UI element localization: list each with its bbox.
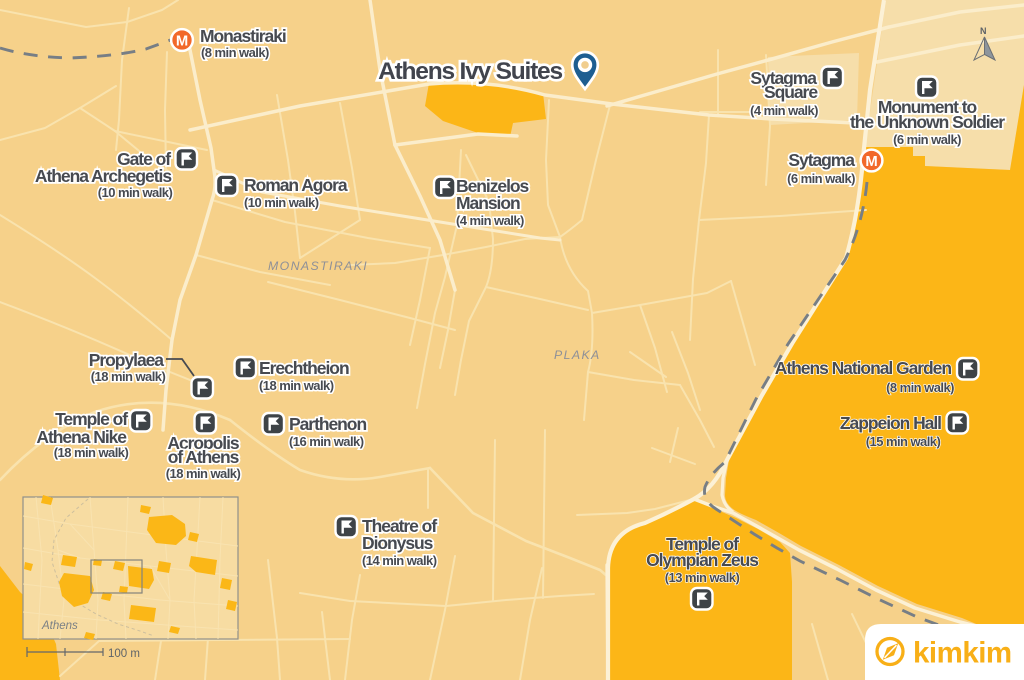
svg-text:M: M xyxy=(176,33,188,49)
svg-text:(10 min walk): (10 min walk) xyxy=(98,185,173,200)
svg-text:Dionysus: Dionysus xyxy=(362,533,434,553)
svg-text:Athens: Athens xyxy=(41,620,78,632)
svg-text:Roman Agora: Roman Agora xyxy=(244,175,348,195)
svg-text:(10 min walk): (10 min walk) xyxy=(244,195,319,210)
svg-text:Mansion: Mansion xyxy=(456,193,520,213)
svg-text:N: N xyxy=(980,26,987,36)
svg-text:Square: Square xyxy=(764,82,818,102)
svg-text:Olympian Zeus: Olympian Zeus xyxy=(646,550,759,570)
svg-text:kimkim: kimkim xyxy=(913,637,1012,670)
svg-text:(6 min walk): (6 min walk) xyxy=(893,132,961,147)
svg-text:the Unknown Soldier: the Unknown Soldier xyxy=(850,112,1005,132)
svg-text:(8 min walk): (8 min walk) xyxy=(201,45,269,60)
svg-text:(14 min walk): (14 min walk) xyxy=(362,553,437,568)
svg-text:Athena Archegetis: Athena Archegetis xyxy=(35,166,172,186)
svg-text:MONASTIRAKI: MONASTIRAKI xyxy=(268,259,368,273)
svg-text:Athens National Garden: Athens National Garden xyxy=(775,358,952,378)
svg-text:Erechtheion: Erechtheion xyxy=(259,358,349,378)
svg-text:Parthenon: Parthenon xyxy=(289,414,366,434)
svg-text:(18 min walk): (18 min walk) xyxy=(54,445,129,460)
svg-text:Monastiraki: Monastiraki xyxy=(200,26,286,46)
svg-text:Temple of: Temple of xyxy=(55,409,128,429)
svg-text:(16 min walk): (16 min walk) xyxy=(289,434,364,449)
svg-text:(18 min walk): (18 min walk) xyxy=(91,369,166,384)
svg-text:100 m: 100 m xyxy=(108,648,140,660)
svg-text:(4 min walk): (4 min walk) xyxy=(750,103,818,118)
svg-text:(18 min walk): (18 min walk) xyxy=(166,466,241,481)
svg-text:Athena Nike: Athena Nike xyxy=(36,427,127,447)
svg-text:(18 min walk): (18 min walk) xyxy=(259,378,334,393)
svg-text:Propylaea: Propylaea xyxy=(89,350,165,370)
svg-text:(6 min walk): (6 min walk) xyxy=(787,171,855,186)
svg-text:Athens Ivy Suites: Athens Ivy Suites xyxy=(378,58,562,85)
svg-text:M: M xyxy=(865,154,877,170)
svg-text:(13 min walk): (13 min walk) xyxy=(665,570,740,585)
svg-text:of Athens: of Athens xyxy=(168,447,240,467)
svg-text:Zappeion Hall: Zappeion Hall xyxy=(840,413,941,433)
svg-text:(15 min walk): (15 min walk) xyxy=(866,434,941,449)
svg-text:Sytagma: Sytagma xyxy=(788,150,855,170)
svg-text:PLAKA: PLAKA xyxy=(554,348,601,362)
svg-text:(8 min walk): (8 min walk) xyxy=(886,380,954,395)
svg-text:(4 min walk): (4 min walk) xyxy=(456,213,524,228)
